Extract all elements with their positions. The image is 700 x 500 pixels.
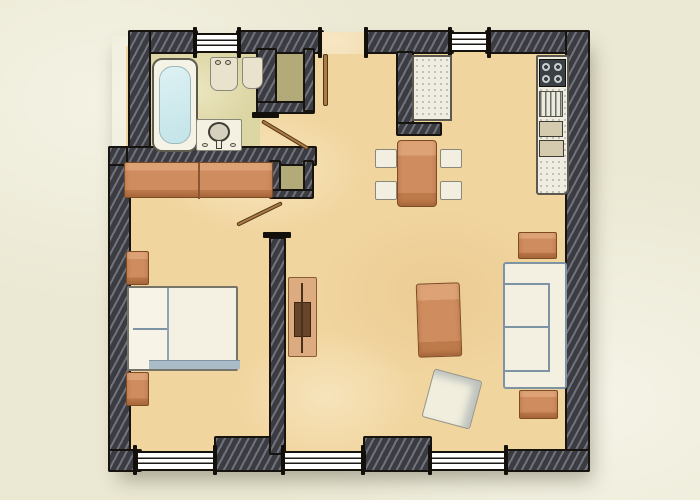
wall-bottom-b — [505, 449, 590, 472]
jamb-tick — [428, 445, 432, 475]
burner — [542, 75, 550, 83]
base-cabinet — [539, 140, 564, 157]
refrigerator — [412, 55, 452, 121]
bidet — [242, 57, 263, 89]
wardrobe-door-seam — [198, 163, 200, 199]
dining-chair — [375, 149, 397, 168]
entry-door-opening — [322, 32, 367, 54]
jamb-tick — [281, 445, 285, 475]
jamb-tick — [448, 27, 452, 58]
wall-left-upper — [128, 30, 151, 160]
nightstand — [126, 372, 149, 406]
washbasin-faucet — [216, 140, 222, 149]
dining-chair — [440, 181, 462, 200]
coffee-table — [416, 282, 463, 357]
window-top-kitchen — [450, 32, 488, 52]
sink-drainer — [539, 91, 563, 117]
double-bed — [127, 286, 238, 371]
burner — [542, 63, 550, 71]
dining-chair — [440, 149, 462, 168]
jamb-tick — [133, 445, 137, 475]
entry-door-leaf — [323, 54, 328, 106]
window-bottom-living-right — [430, 451, 508, 471]
toilet-button — [215, 60, 221, 65]
burner — [554, 63, 562, 71]
wall-bottom-pier2 — [363, 436, 432, 472]
jamb-tick — [487, 27, 491, 58]
dining-chair — [375, 181, 397, 200]
washbasin-bowl — [208, 122, 230, 142]
floor-plan-canvas — [0, 0, 700, 500]
washbasin-tap — [230, 143, 236, 147]
jamb-tick — [361, 445, 365, 475]
side-table — [518, 232, 557, 259]
window-bottom-bedroom — [136, 451, 217, 471]
sofa-armrest-line — [505, 283, 549, 285]
jamb-tick — [504, 445, 508, 475]
window-bottom-living-left — [283, 451, 366, 471]
wall-niche2-bottom — [269, 189, 314, 199]
wall-niche1-right — [303, 48, 315, 112]
jamb-tick — [237, 27, 241, 58]
jamb-tick — [213, 445, 217, 475]
wall-fridge-lip — [396, 122, 442, 136]
sofa — [503, 262, 567, 389]
sofa-backrest-line — [548, 283, 550, 372]
washbasin-tap — [202, 143, 208, 147]
jamb-tick — [193, 27, 197, 58]
window-top-bathroom — [195, 33, 239, 53]
jamb-tick — [364, 27, 368, 58]
tv-unit — [288, 277, 317, 357]
dining-table — [397, 140, 437, 207]
wardrobe — [124, 162, 273, 198]
pillow-crease — [133, 328, 167, 330]
toilet-button — [225, 60, 231, 65]
bed-duvet-edge — [149, 360, 240, 369]
tv-line — [301, 283, 303, 353]
sofa-armrest-line — [505, 370, 549, 372]
wall-partition-bedroom-living — [269, 237, 286, 455]
bathtub-water — [159, 66, 191, 144]
burner — [554, 75, 562, 83]
jamb-tick — [318, 27, 322, 58]
bed-pillows — [129, 288, 169, 369]
wall-end-cap — [263, 232, 291, 238]
side-table — [519, 390, 558, 419]
sofa-cushion-line — [505, 326, 549, 328]
wall-end-cap — [252, 112, 279, 118]
base-cabinet — [539, 121, 563, 137]
nightstand — [126, 251, 149, 285]
